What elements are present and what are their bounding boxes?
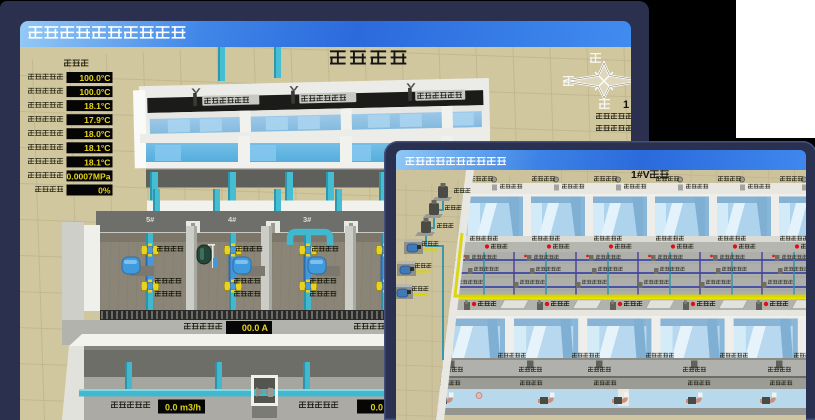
svg-text:0.0: 0.0 (370, 403, 383, 413)
svg-text:5#: 5# (146, 215, 155, 224)
svg-text:18.0°C: 18.0°C (84, 129, 110, 139)
svg-text:1: 1 (623, 99, 629, 111)
svg-text:18.1°C: 18.1°C (84, 157, 110, 167)
svg-text:0.0 m3/h: 0.0 m3/h (165, 403, 201, 413)
svg-text:18.1°C: 18.1°C (84, 143, 110, 153)
svg-text:17.9°C: 17.9°C (84, 115, 110, 125)
svg-text:0.0007MPa: 0.0007MPa (67, 171, 111, 181)
svg-text:00.0 A: 00.0 A (242, 323, 269, 333)
svg-text:100.0°C: 100.0°C (79, 87, 110, 97)
svg-text:0%: 0% (98, 185, 111, 195)
svg-text:3#: 3# (303, 215, 312, 224)
svg-text:100.0°C: 100.0°C (79, 73, 110, 83)
svg-text:1#V: 1#V (631, 170, 650, 181)
svg-text:18.1°C: 18.1°C (84, 101, 110, 111)
svg-text:4#: 4# (228, 215, 237, 224)
